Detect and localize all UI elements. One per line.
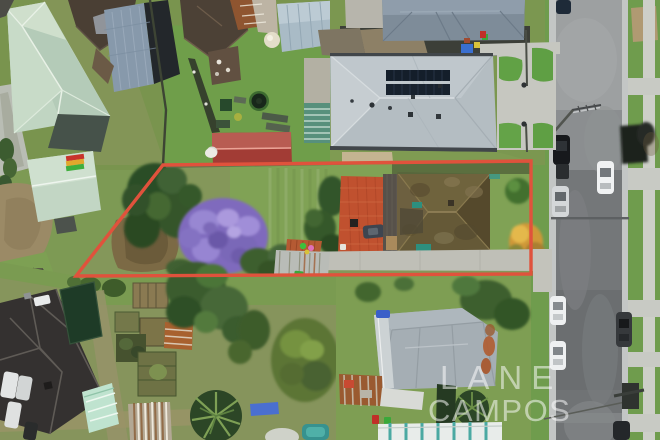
svg-text:CAMPOS: CAMPOS <box>428 393 571 428</box>
svg-text:LANE: LANE <box>440 359 562 396</box>
